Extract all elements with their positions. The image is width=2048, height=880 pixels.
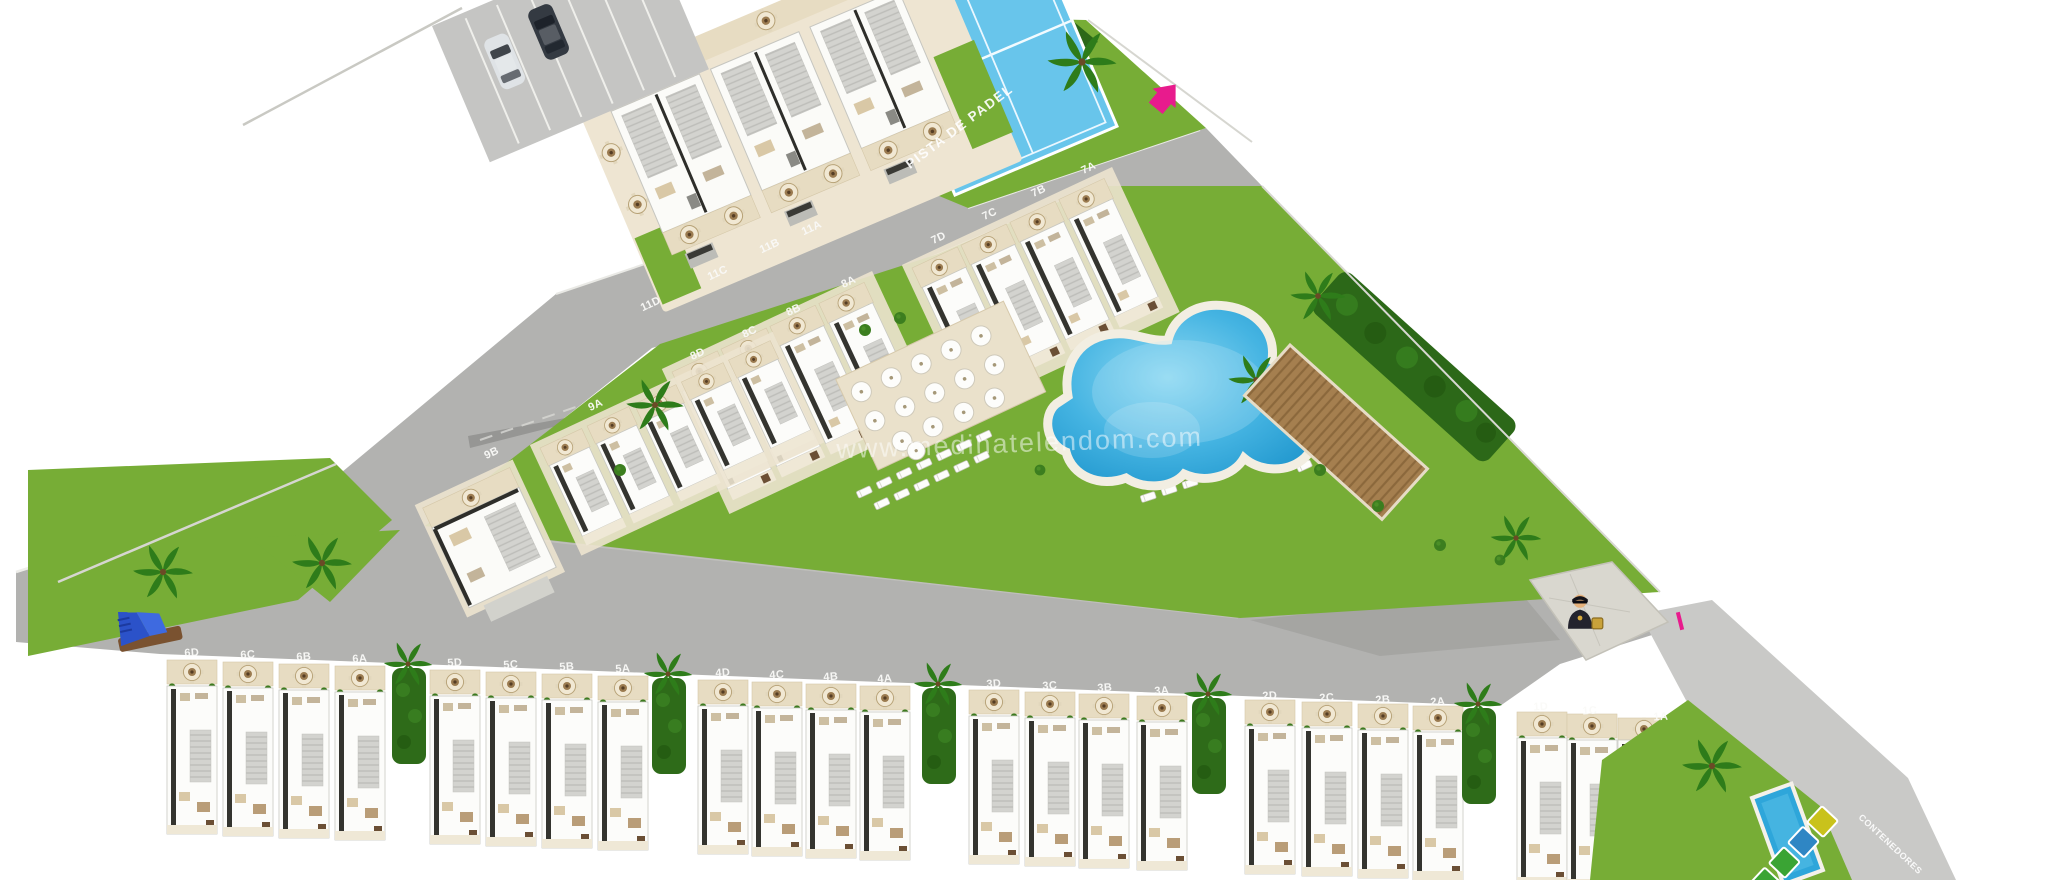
label-2d: 2D [1262, 690, 1278, 703]
house-unit [1413, 706, 1463, 880]
label-4c: 4C [769, 669, 785, 682]
label-3c: 3C [1042, 680, 1058, 693]
house-unit [1358, 704, 1408, 878]
house-unit [167, 660, 217, 834]
label-5b: 5B [559, 661, 575, 674]
house-unit [1079, 694, 1129, 868]
house-unit [1137, 696, 1187, 870]
boundary-line [243, 8, 462, 125]
house-unit [598, 676, 648, 850]
house-unit [486, 672, 536, 846]
label-2b: 2B [1375, 694, 1391, 707]
label-2a: 2A [1430, 696, 1446, 709]
label-5d: 5D [447, 657, 463, 670]
house-unit [223, 662, 273, 836]
label-1c: 1C [1582, 705, 1598, 718]
house-unit [1025, 692, 1075, 866]
label-6d: 6D [184, 647, 200, 660]
label-5a: 5A [615, 663, 631, 676]
house-unit [430, 670, 480, 844]
house-unit [806, 684, 856, 858]
label-1d: 1D [1533, 701, 1549, 714]
house-unit [335, 666, 385, 840]
label-3b: 3B [1097, 682, 1113, 695]
label-3d: 3D [986, 678, 1002, 691]
label-4a: 4A [877, 673, 893, 686]
label-5c: 5C [503, 659, 519, 672]
house-unit [1517, 712, 1567, 880]
site-plan-drawing: 11A 11B 11C 11D 7A 7B 7C 7D 8A 8B 8C 8D … [0, 0, 2048, 880]
label-6c: 6C [240, 649, 256, 662]
label-1a: 1A [1653, 711, 1669, 724]
house-unit [279, 664, 329, 838]
label-6a: 6A [352, 653, 368, 666]
label-4d: 4D [715, 667, 731, 680]
label-3a: 3A [1154, 685, 1170, 698]
label-4b: 4B [823, 671, 839, 684]
label-2c: 2C [1319, 692, 1335, 705]
house-unit [969, 690, 1019, 864]
site-plan: 11A 11B 11C 11D 7A 7B 7C 7D 8A 8B 8C 8D … [0, 0, 2048, 880]
house-unit [752, 682, 802, 856]
house-unit [860, 686, 910, 860]
house-unit [542, 674, 592, 848]
house-unit [1245, 700, 1295, 874]
house-unit [698, 680, 748, 854]
house-unit [1302, 702, 1352, 876]
label-6b: 6B [296, 651, 312, 664]
